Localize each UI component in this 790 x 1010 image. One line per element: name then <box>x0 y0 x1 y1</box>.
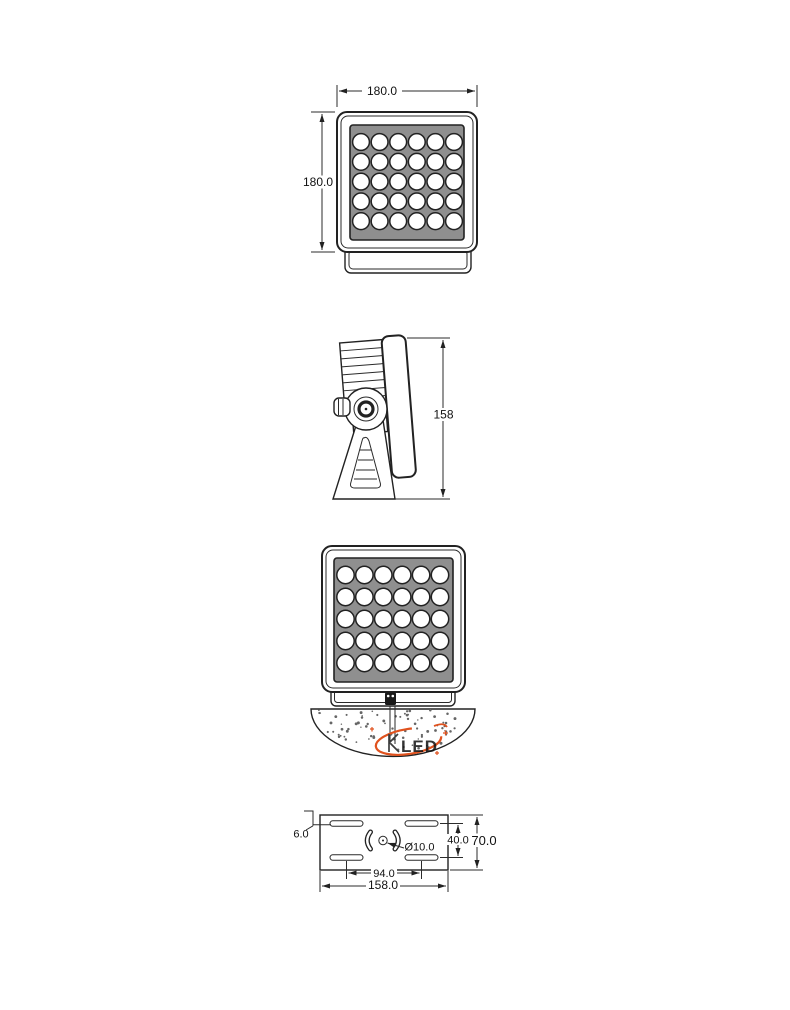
led-lens <box>375 610 392 627</box>
led-lens <box>408 193 425 210</box>
led-lens <box>337 632 354 649</box>
led-lens <box>431 566 448 583</box>
led-lens <box>427 193 444 210</box>
led-lens <box>390 213 407 230</box>
led-lens <box>412 610 429 627</box>
led-lens <box>353 173 370 190</box>
led-lens <box>446 134 463 151</box>
led-lens <box>390 153 407 170</box>
led-lens <box>390 173 407 190</box>
led-lens <box>337 610 354 627</box>
led-lens <box>394 566 411 583</box>
led-lens <box>427 153 444 170</box>
led-lens <box>394 610 411 627</box>
led-lens <box>446 213 463 230</box>
slot-span-label: 40.0 <box>447 835 468 847</box>
installed-view: LED <box>311 546 475 759</box>
led-lens <box>431 654 448 671</box>
pivot-center-dot <box>365 408 368 411</box>
mounting-plate-view: 6.0 Ø10.0 40.0 70.0 94.0 158. <box>293 811 499 892</box>
plate-height-label: 70.0 <box>471 833 496 848</box>
led-lens <box>337 566 354 583</box>
led-lens <box>408 213 425 230</box>
connector-screw-right <box>392 695 395 698</box>
led-lens <box>337 654 354 671</box>
led-lens <box>375 632 392 649</box>
led-lens <box>427 213 444 230</box>
led-lens <box>356 610 373 627</box>
front-width-label: 180.0 <box>367 84 397 98</box>
led-lens <box>375 654 392 671</box>
cable-connector <box>385 693 396 706</box>
center-hole-dot <box>382 840 384 842</box>
led-lens <box>431 610 448 627</box>
led-lens <box>446 153 463 170</box>
led-lens <box>356 588 373 605</box>
front-view: 180.0 180.0 <box>302 84 477 273</box>
led-lens <box>412 588 429 605</box>
led-lens <box>446 193 463 210</box>
led-lens <box>356 654 373 671</box>
led-lens <box>371 153 388 170</box>
led-lens <box>412 632 429 649</box>
watermark-text: LED <box>401 737 438 756</box>
hole-diameter-label: Ø10.0 <box>405 842 435 854</box>
led-lens <box>394 632 411 649</box>
led-lens <box>427 134 444 151</box>
led-lens <box>408 153 425 170</box>
led-lens <box>356 566 373 583</box>
slot-width-label: 6.0 <box>293 829 308 841</box>
technical-drawing-svg: 180.0 180.0 158 <box>0 0 790 1010</box>
led-lens <box>353 213 370 230</box>
connector-screw-left <box>387 695 390 698</box>
led-lens <box>337 588 354 605</box>
led-lens <box>390 134 407 151</box>
side-view: 158 <box>333 335 457 499</box>
led-lens <box>371 173 388 190</box>
led-lens <box>394 588 411 605</box>
led-lens <box>356 632 373 649</box>
side-height-label: 158 <box>433 408 453 422</box>
led-lens <box>431 588 448 605</box>
led-lens <box>371 193 388 210</box>
led-lens <box>446 173 463 190</box>
led-lens <box>353 193 370 210</box>
dim-front-width: 180.0 <box>337 84 477 107</box>
led-lens <box>427 173 444 190</box>
adjust-knob <box>334 398 350 416</box>
led-lens <box>353 134 370 151</box>
led-lens <box>408 134 425 151</box>
drawing-page: 180.0 180.0 158 <box>0 0 790 1010</box>
led-lens <box>353 153 370 170</box>
led-lens <box>431 632 448 649</box>
led-lens <box>371 134 388 151</box>
front-height-label: 180.0 <box>303 175 333 189</box>
led-lens <box>412 566 429 583</box>
led-lens <box>390 193 407 210</box>
led-lens <box>375 588 392 605</box>
dim-front-height: 180.0 <box>302 112 335 252</box>
led-lens <box>371 213 388 230</box>
led-lens <box>408 173 425 190</box>
led-lens <box>394 654 411 671</box>
led-lens <box>412 654 429 671</box>
led-lens <box>375 566 392 583</box>
plate-width-label: 158.0 <box>368 878 398 892</box>
